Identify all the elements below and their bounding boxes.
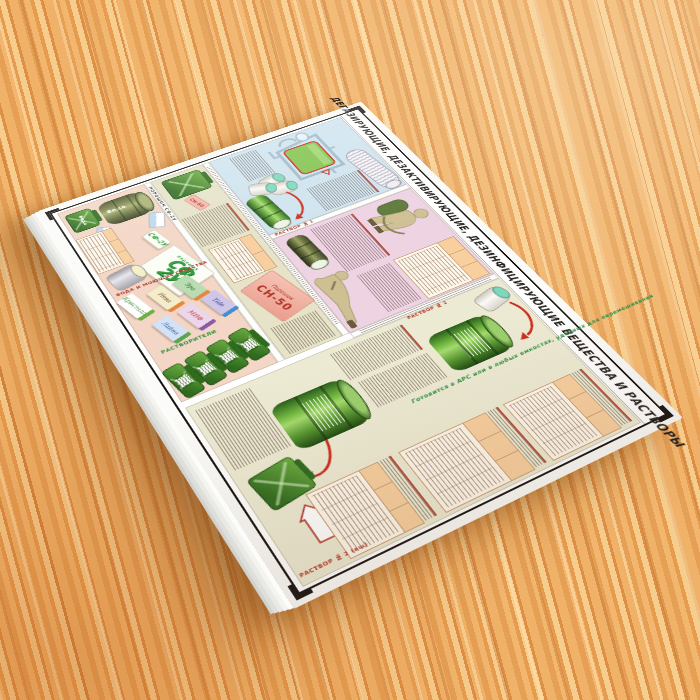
barrel-inscription: [450, 327, 491, 358]
sf2u-powder-pack: [149, 212, 166, 228]
water-jerrycan: Вода: [64, 208, 101, 234]
solution-2ash-label: РАСТВОР № 2 (ащ): [298, 551, 348, 579]
water-barrel-label: Вода: [106, 201, 137, 215]
soap-name: Tide: [210, 297, 226, 308]
water-barrel: Вода: [96, 191, 154, 227]
poster-board: ДЕГАЗИРУЮЩИЕ, ДЕЗАКТИВИРУЮЩИЕ, ДЕЗИНФИЦИ…: [38, 102, 683, 609]
scene: ДЕГАЗИРУЮЩИЕ, ДЕЗАКТИВИРУЮЩИЕ, ДЕЗИНФИЦИ…: [0, 0, 700, 700]
body-text-block: [195, 388, 291, 471]
green-jerrycan-sn50: [160, 169, 212, 200]
sf2u-mini-text: СФ-2У: [146, 232, 168, 247]
poster-printed-area: ДЕГАЗИРУЮЩИЕ, ДЕЗАКТИВИРУЮЩИЕ, ДЕЗИНФИЦИ…: [49, 108, 667, 595]
soap-name: Лайна: [160, 320, 181, 336]
soap-box-laina: Лайна: [152, 315, 189, 342]
barrel-inscription: [299, 394, 345, 432]
sf2u-mini-logo: СФ-2У: [142, 229, 172, 250]
soap-name: МИФ: [186, 309, 204, 322]
soap-box-kristall: Кристалл: [117, 293, 153, 319]
soap-name: Нева: [156, 291, 173, 303]
poster-content: РАСТВОР № 1: [55, 117, 641, 588]
sn50-tag: СН-50: [184, 194, 211, 211]
soap-box-mif: МИФ: [177, 303, 214, 329]
soap-name: Эра: [183, 281, 198, 291]
